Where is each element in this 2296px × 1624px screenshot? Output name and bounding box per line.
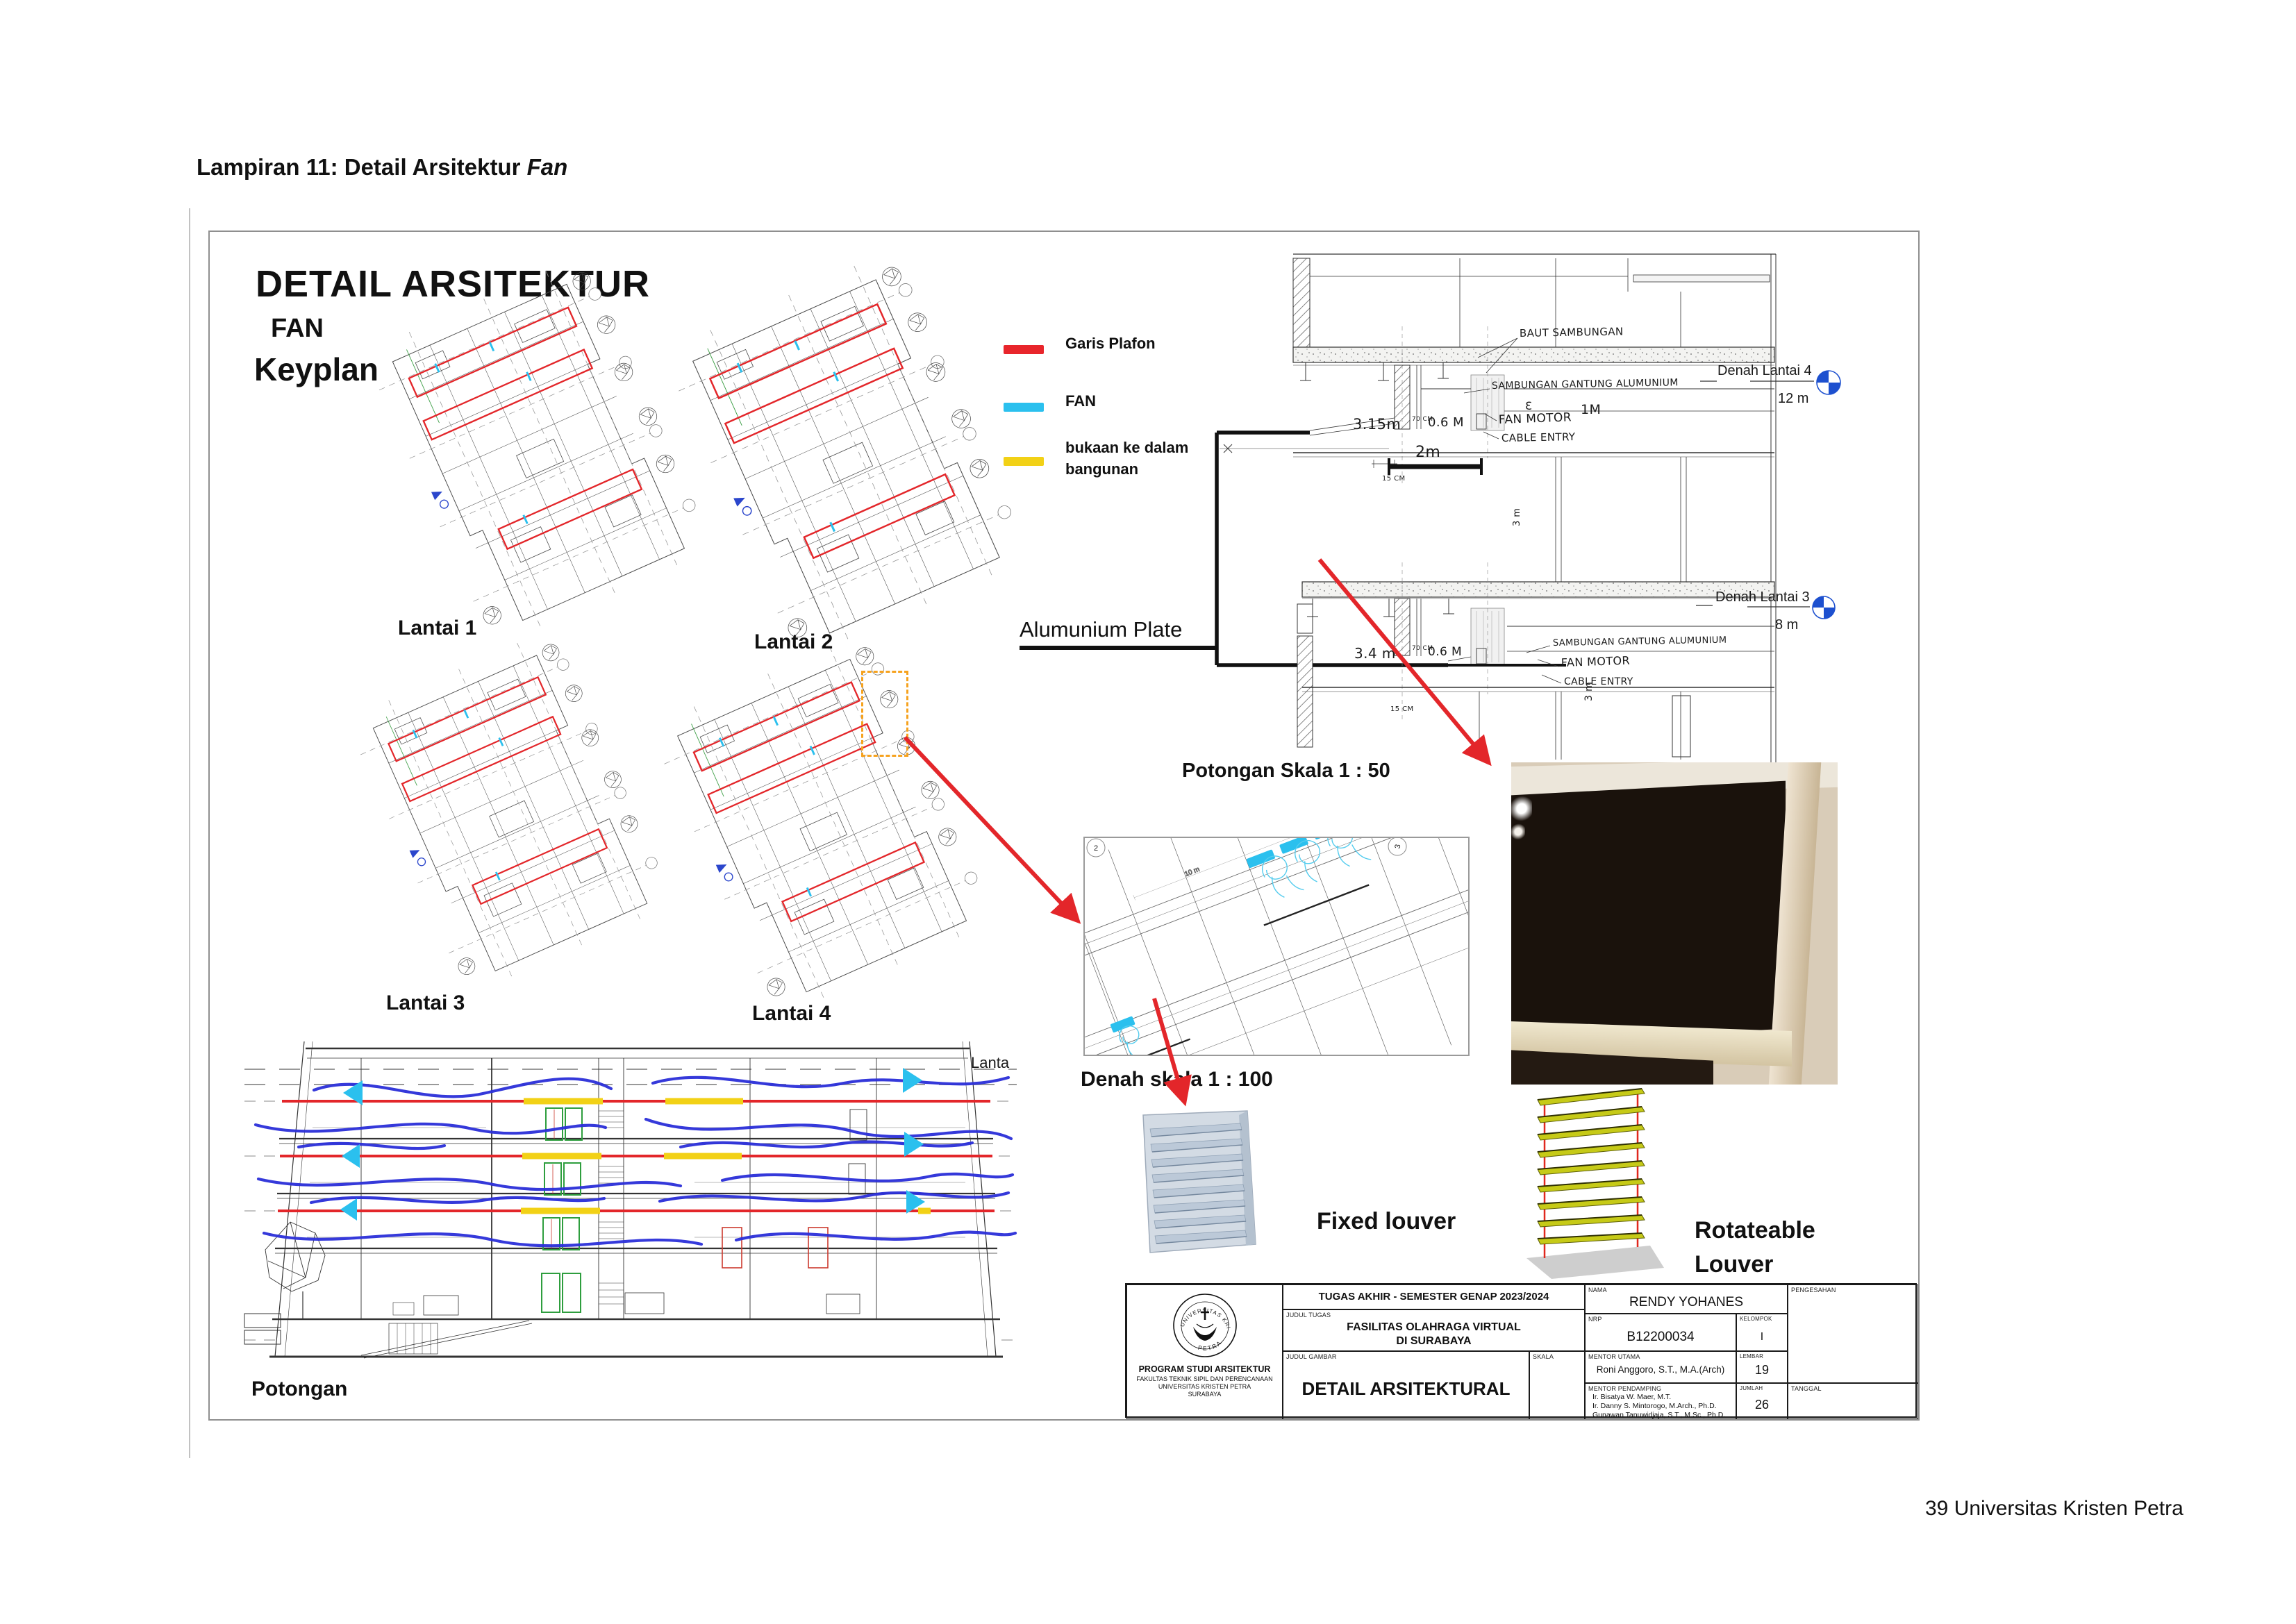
label-kelompok: KELOMPOK xyxy=(1740,1316,1772,1322)
label-skala: SKALA xyxy=(1533,1353,1554,1360)
label-tanggal: TANGGAL xyxy=(1791,1385,1822,1392)
label-jumlah: JUMLAH xyxy=(1740,1385,1763,1391)
label-rotatable-line2: Louver xyxy=(1695,1248,1854,1282)
nrp-value: B12200034 xyxy=(1586,1330,1736,1345)
potongan-clipped-label: Lanta xyxy=(971,1054,1010,1071)
mentor-utama-value: Roni Anggoro, S.T., M.A.(Arch) xyxy=(1586,1364,1736,1375)
page-margin-line xyxy=(189,208,190,1458)
caption-denah-skala: Denah skala 1 : 100 xyxy=(1081,1068,1273,1091)
titleblock-nama-cell: NAMA RENDY YOHANES xyxy=(1585,1284,1788,1314)
label-rotatable-louver: Rotateable Louver xyxy=(1695,1214,1854,1282)
note-fan-motor: FAN MOTOR xyxy=(1498,410,1572,427)
institution-line2: FAKULTAS TEKNIK SIPIL DAN PERENCANAAN xyxy=(1127,1375,1282,1383)
photo-window xyxy=(1511,781,1786,1044)
caption-potongan: Potongan xyxy=(251,1378,347,1401)
dim-34m: 3.4 m xyxy=(1354,645,1396,662)
judul-tugas-line1: FASILITAS OLAHRAGA VIRTUAL xyxy=(1283,1321,1584,1334)
dim-315m: 3.15m xyxy=(1353,416,1401,433)
note-cable-entry-2: CABLE ENTRY xyxy=(1564,676,1633,687)
potongan-drawing: Lanta xyxy=(242,1019,1020,1375)
note-baut-sambungan: BAUT SAMBUNGAN xyxy=(1520,325,1624,340)
titleblock-nrp-cell: NRP B12200034 xyxy=(1585,1314,1736,1351)
louver-photo xyxy=(1511,762,1838,1085)
keyplan-lantai-2 xyxy=(661,248,1033,662)
lembar-value: 19 xyxy=(1737,1363,1787,1378)
legend-label-garis-plafon: Garis Plafon xyxy=(1065,335,1156,353)
detail-highlight-box xyxy=(861,671,908,757)
photo-lamp-glow-2 xyxy=(1511,822,1525,841)
institution-line3: UNIVERSITAS KRISTEN PETRA xyxy=(1127,1383,1282,1391)
label-lembar: LEMBAR xyxy=(1740,1353,1763,1359)
legend-swatch-bukaan xyxy=(1004,457,1044,466)
dim-scalebar: 2m xyxy=(1415,444,1440,461)
page-heading: Lampiran 11: Detail Arsitektur Fan xyxy=(197,154,567,181)
level-marker-lantai4: Denah Lantai 4 12 m xyxy=(1700,363,1840,406)
label-rotatable-line1: Rotateable xyxy=(1695,1214,1854,1248)
level-name-lantai4: Denah Lantai 4 xyxy=(1717,363,1812,378)
dim-15cm-top: 15 CM xyxy=(1382,475,1406,483)
judul-gambar-value: DETAIL ARSITEKTURAL xyxy=(1283,1378,1529,1400)
rotatable-louver-image xyxy=(1520,1079,1669,1282)
label-judul-gambar: JUDUL GAMBAR xyxy=(1286,1353,1337,1360)
logo-text-bottom: PETRA xyxy=(1197,1339,1223,1352)
keyplan-lantai-3 xyxy=(345,627,678,997)
institution-line1: PROGRAM STUDI ARSITEKTUR xyxy=(1127,1364,1282,1375)
petra-logo: UNIVERSITAS KRISTEN PETRA xyxy=(1170,1291,1240,1360)
note-sambungan-gantung: SAMBUNGAN GANTUNG ALUMUNIUM xyxy=(1492,377,1679,392)
dim-06m-top: 0.6 M xyxy=(1428,415,1464,430)
mentor-2: Ir. Bisatya W. Maer, M.T. xyxy=(1592,1393,1725,1402)
fixed-louver-image xyxy=(1136,1108,1264,1257)
keyplan-lantai-1 xyxy=(363,253,717,648)
heading-italic: Fan xyxy=(527,154,568,180)
keyplan-label-lantai3: Lantai 3 xyxy=(386,991,465,1015)
photo-lamp-glow xyxy=(1511,794,1532,823)
label-fixed-louver: Fixed louver xyxy=(1317,1208,1456,1235)
titleblock-judul-tugas-cell: JUDUL TUGAS FASILITAS OLAHRAGA VIRTUAL D… xyxy=(1283,1309,1585,1351)
level-elev-lantai4: 12 m xyxy=(1778,391,1808,406)
titleblock-tanggal-cell: TANGGAL xyxy=(1788,1383,1918,1419)
section-detail-drawing: BAUT SAMBUNGAN SAMBUNGAN GANTUNG ALUMUNI… xyxy=(1214,251,1882,769)
keyplan-drawings xyxy=(236,278,1014,1035)
judul-tugas-line2: DI SURABAYA xyxy=(1283,1335,1584,1348)
titleblock-logo-cell: UNIVERSITAS KRISTEN PETRA PROGRAM STUDI … xyxy=(1126,1284,1283,1419)
mentor-3: Ir. Danny S. Mintorogo, M.Arch., Ph.D. xyxy=(1592,1402,1725,1411)
logo-boat xyxy=(1193,1327,1217,1341)
mentor-4: Gunawan Tanuwidjaja, S.T., M.Sc., Ph.D. xyxy=(1592,1411,1725,1420)
note-e-mark: Ɛ xyxy=(1525,399,1532,412)
keyplan-label-lantai2: Lantai 2 xyxy=(754,630,833,654)
jumlah-value: 26 xyxy=(1737,1398,1787,1412)
titleblock-lembar-cell: LEMBAR 19 xyxy=(1736,1351,1788,1383)
denah-bubble-left: 2 xyxy=(1094,844,1098,853)
legend-label-bukaan: bukaan ke dalam bangunan xyxy=(1065,437,1215,480)
document-page: Lampiran 11: Detail Arsitektur Fan DETAI… xyxy=(0,0,2296,1624)
legend-label-fan: FAN xyxy=(1065,392,1096,410)
titleblock-header-cell: TUGAS AKHIR - SEMESTER GENAP 2023/2024 xyxy=(1283,1284,1585,1309)
title-block: UNIVERSITAS KRISTEN PETRA PROGRAM STUDI … xyxy=(1125,1283,1917,1418)
note-fan-motor-2: FAN MOTOR xyxy=(1561,654,1630,669)
legend-swatch-garis-plafon xyxy=(1004,345,1044,354)
note-sambungan-gantung-2: SAMBUNGAN GANTUNG ALUMUNIUM xyxy=(1553,635,1727,648)
dim-3m-a: 3 m xyxy=(1512,508,1522,526)
callout-alumunium-plate: Alumunium Plate xyxy=(1020,617,1218,650)
titleblock-pengesahan-cell: PENGESAHAN xyxy=(1788,1284,1918,1383)
denah-detail-drawing: 10 m 2 3 xyxy=(1083,837,1470,1056)
titleblock-kelompok-cell: KELOMPOK I xyxy=(1736,1314,1788,1351)
titleblock-judul-gambar-cell: JUDUL GAMBAR DETAIL ARSITEKTURAL xyxy=(1283,1351,1529,1419)
svg-text:PETRA: PETRA xyxy=(1197,1339,1223,1352)
institution-line4: SURABAYA xyxy=(1127,1391,1282,1398)
label-mentor-pendamping: MENTOR PENDAMPING xyxy=(1588,1385,1661,1392)
note-fan-dim: 1M xyxy=(1581,402,1601,417)
caption-potongan-skala: Potongan Skala 1 : 50 xyxy=(1182,760,1390,782)
note-cable-entry: CABLE ENTRY xyxy=(1501,430,1576,444)
titleblock-header: TUGAS AKHIR - SEMESTER GENAP 2023/2024 xyxy=(1283,1291,1584,1303)
kelompok-value: I xyxy=(1737,1331,1787,1343)
label-pengesahan: PENGESAHAN xyxy=(1791,1287,1836,1294)
label-nrp: NRP xyxy=(1588,1316,1602,1323)
legend-swatch-fan xyxy=(1004,403,1044,412)
label-mentor-utama: MENTOR UTAMA xyxy=(1588,1353,1640,1360)
dim-15cm-bot: 15 CM xyxy=(1390,705,1414,713)
keyplan-label-lantai1: Lantai 1 xyxy=(398,617,476,640)
titleblock-skala-cell: SKALA xyxy=(1529,1351,1585,1419)
keyplan-lantai-4 xyxy=(648,629,999,1019)
page-footer: 39 Universitas Kristen Petra xyxy=(1925,1497,2183,1521)
nama-value: RENDY YOHANES xyxy=(1586,1295,1787,1310)
level-name-lantai3: Denah Lantai 3 xyxy=(1715,589,1810,605)
titleblock-jumlah-cell: JUMLAH 26 xyxy=(1736,1383,1788,1419)
heading-text: Lampiran 11: Detail Arsitektur xyxy=(197,154,527,180)
label-judul-tugas: JUDUL TUGAS xyxy=(1286,1312,1331,1319)
titleblock-mentor-pendamping-cell: MENTOR PENDAMPING Ir. Bisatya W. Maer, M… xyxy=(1585,1383,1736,1419)
dim-06m-bot: 0.6 M xyxy=(1428,645,1462,659)
level-elev-lantai3: 8 m xyxy=(1775,617,1798,633)
titleblock-mentor-utama-cell: MENTOR UTAMA Roni Anggoro, S.T., M.A.(Ar… xyxy=(1585,1351,1736,1383)
dim-3m-b: 3 m xyxy=(1583,682,1595,701)
label-nama: NAMA xyxy=(1588,1287,1607,1294)
